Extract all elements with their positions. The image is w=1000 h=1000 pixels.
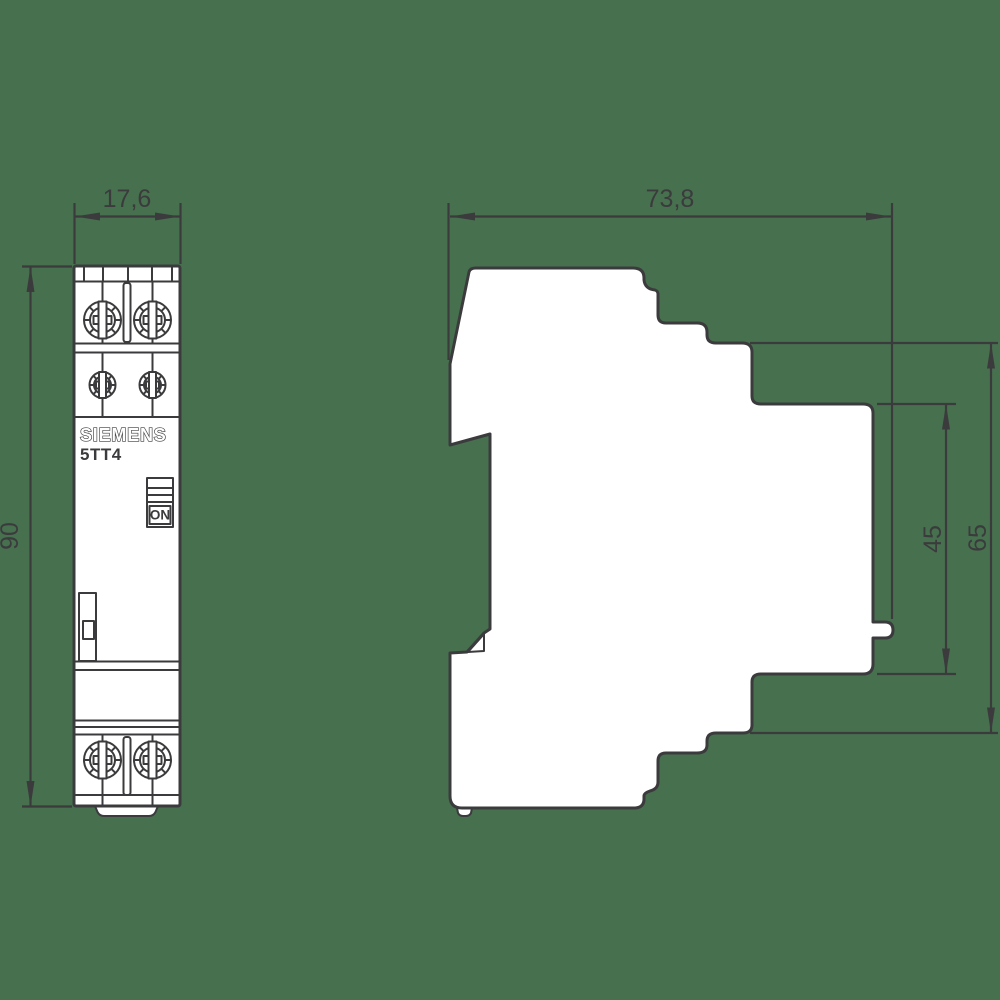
drawing-canvas: SIEMENS 5TT4 ON xyxy=(0,0,1000,1000)
arrow-down-icon xyxy=(942,649,950,675)
dimension-label-front-height: 90 xyxy=(0,522,24,550)
arrow-right-icon xyxy=(155,213,180,221)
technical-drawing: SIEMENS 5TT4 ON xyxy=(0,0,1000,1000)
latch-window xyxy=(83,621,94,639)
screw-terminal-icon xyxy=(90,372,116,398)
arrow-up-icon xyxy=(942,404,950,430)
dimension-front-height: 90 xyxy=(0,267,72,807)
arrow-left-icon xyxy=(75,213,100,221)
dimension-label-side-depth: 73,8 xyxy=(646,185,695,213)
screw-terminal-icon xyxy=(140,372,166,398)
arrow-right-icon xyxy=(866,213,891,221)
dimension-front-width: 17,6 xyxy=(75,185,181,264)
dimension-label-body-height: 65 xyxy=(964,524,992,552)
terminal-slot xyxy=(124,283,131,342)
screw-terminal-icon xyxy=(134,302,171,339)
screw-terminal-icon xyxy=(134,742,171,779)
terminal-slot xyxy=(124,737,131,795)
arrow-left-icon xyxy=(450,213,475,221)
screw-terminal-icon xyxy=(84,302,121,339)
dimension-label-front-face-height: 45 xyxy=(919,525,947,553)
screw-terminal-icon xyxy=(84,742,121,779)
on-switch[interactable]: ON xyxy=(147,478,173,527)
arrow-down-icon xyxy=(27,781,35,807)
arrow-down-icon xyxy=(987,708,995,734)
brand-label: SIEMENS xyxy=(80,425,167,445)
dimension-label-front-width: 17,6 xyxy=(103,185,152,213)
front-view-body xyxy=(74,266,180,806)
arrow-up-icon xyxy=(27,267,35,293)
front-view: SIEMENS 5TT4 ON xyxy=(74,266,180,816)
switch-on-label: ON xyxy=(150,508,170,523)
arrow-up-icon xyxy=(987,343,995,369)
side-profile xyxy=(450,268,893,808)
model-label: 5TT4 xyxy=(80,445,122,464)
